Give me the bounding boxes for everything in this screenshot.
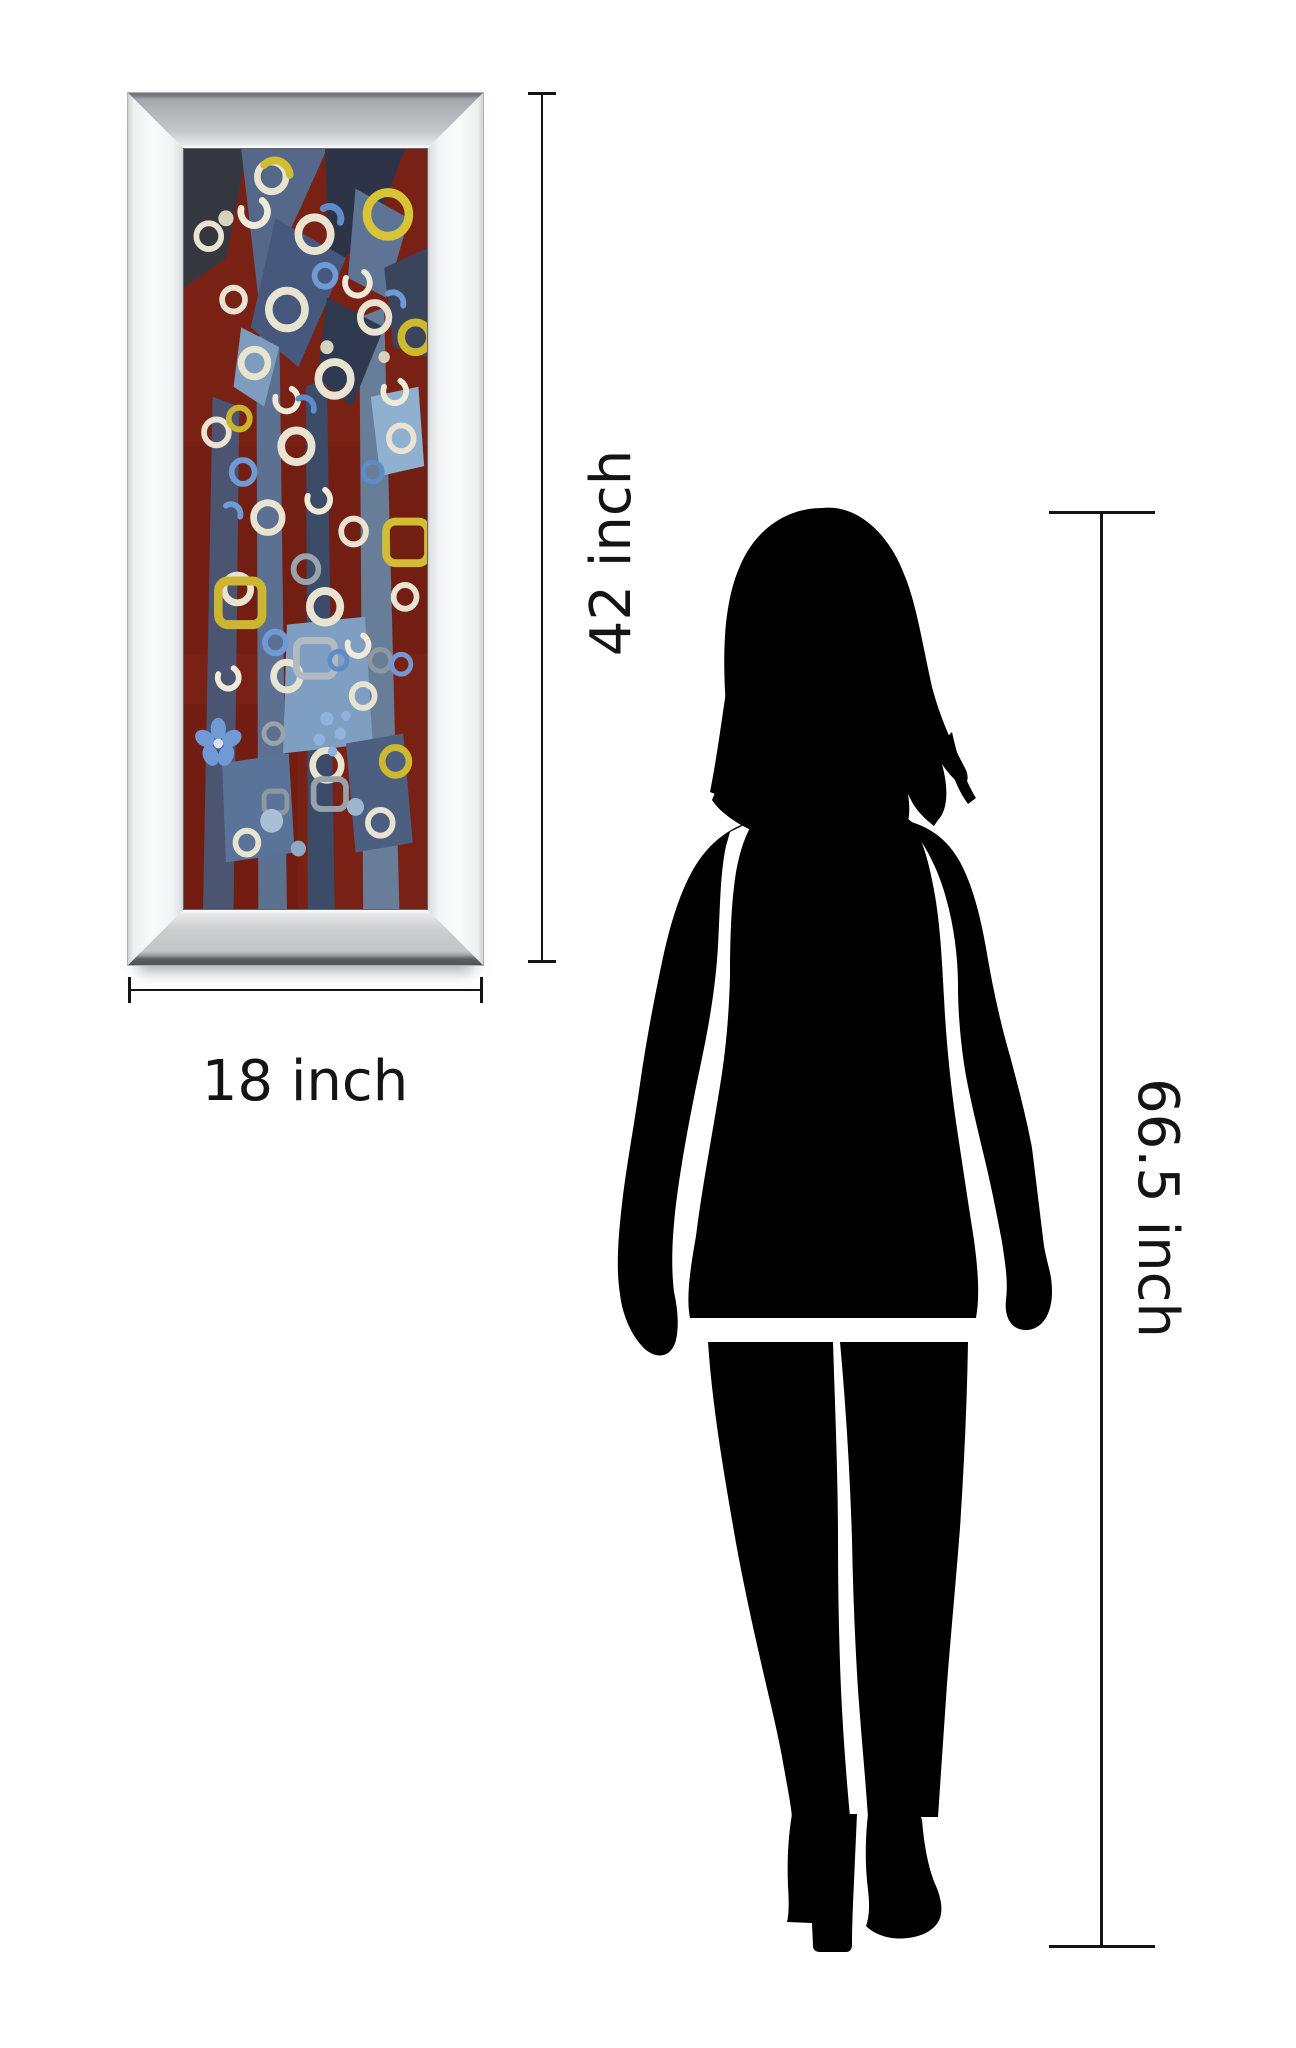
height-dimension-cap-top	[528, 92, 556, 95]
person-height-dimension-cap-bottom	[1049, 1945, 1155, 1948]
person-height-dimension-label: 66.5 inch	[1129, 1078, 1185, 1338]
width-dimension-label: 18 inch	[202, 1054, 408, 1110]
width-dimension-cap-left	[128, 977, 131, 1003]
frame-bevel-bottom	[128, 910, 483, 965]
abstract-artwork-canvas	[184, 149, 427, 909]
mirror-frame	[128, 93, 483, 965]
person-height-dimension-line	[1100, 512, 1103, 1948]
frame-bevel-left	[128, 93, 183, 965]
abstract-artwork	[183, 148, 428, 910]
frame-bevel-top	[128, 93, 483, 148]
height-dimension-cap-bottom	[528, 960, 556, 963]
woman-silhouette	[616, 502, 1066, 1952]
frame-bevel-right	[428, 93, 483, 965]
width-dimension-line	[129, 989, 482, 991]
woman-silhouette-figure	[616, 502, 1066, 1952]
person-height-dimension-cap-top	[1049, 511, 1155, 514]
width-dimension-cap-right	[480, 977, 483, 1003]
product-size-illustration: 42 inch 18 inch	[0, 0, 1296, 2048]
height-dimension-line	[541, 93, 543, 963]
